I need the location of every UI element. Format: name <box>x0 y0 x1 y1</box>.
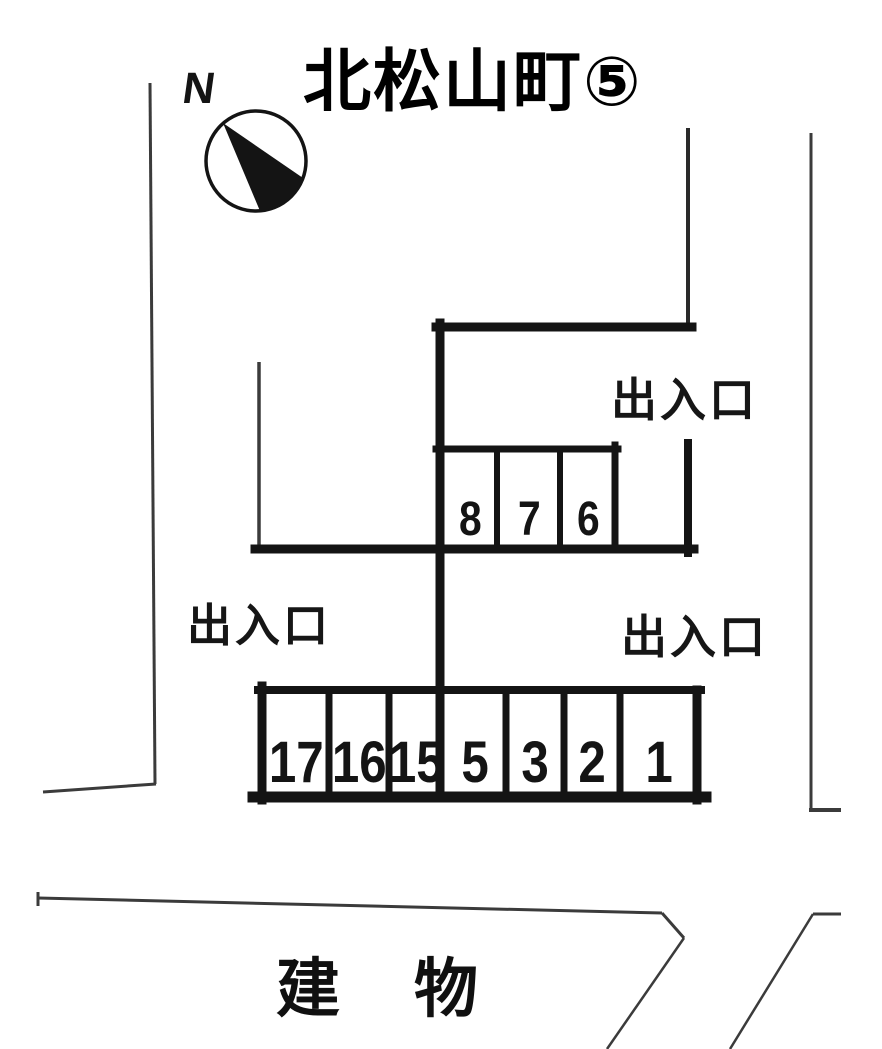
parking-layout-map: 北松山町⑤ N 出入口 出入口 出入口 建物 8 7 6 17 16 15 5 … <box>0 0 882 1049</box>
parking-space-1: 1 <box>625 696 693 792</box>
parking-space-label: 2 <box>579 734 606 792</box>
parking-space-label: 7 <box>518 496 541 544</box>
parking-space-2: 2 <box>569 696 616 792</box>
parking-space-8: 8 <box>445 452 495 544</box>
site-plan-lines <box>0 0 882 1049</box>
road-diagonal-right <box>730 914 813 1049</box>
road-diagonal-left <box>607 938 684 1049</box>
parking-space-label: 5 <box>461 734 488 792</box>
parking-space-6: 6 <box>564 452 612 544</box>
boundary-line-left <box>150 83 155 784</box>
bottom-boundary-line <box>38 898 662 913</box>
parking-space-3: 3 <box>511 696 560 792</box>
parking-space-label: 15 <box>389 734 444 792</box>
parking-space-16: 16 <box>334 696 385 792</box>
parking-space-label: 17 <box>269 734 324 792</box>
page-title: 北松山町⑤ <box>303 26 643 125</box>
parking-space-label: 1 <box>645 734 672 792</box>
parking-space-label: 8 <box>459 496 482 544</box>
parking-space-label: 16 <box>332 734 387 792</box>
parking-space-label: 3 <box>522 734 549 792</box>
boundary-corner-left-bottom <box>43 784 156 792</box>
parking-space-15: 15 <box>394 696 439 792</box>
building-label: 建物 <box>276 938 552 1030</box>
bottom-boundary-bend <box>662 913 684 938</box>
parking-space-7: 7 <box>501 452 557 544</box>
parking-space-17: 17 <box>267 696 325 792</box>
entrance-label-bottom-right: 出入口 <box>621 601 768 667</box>
entrance-label-top-right: 出入口 <box>611 364 758 430</box>
parking-space-5: 5 <box>448 696 502 792</box>
parking-space-label: 6 <box>577 496 600 544</box>
entrance-label-left: 出入口 <box>187 589 331 654</box>
